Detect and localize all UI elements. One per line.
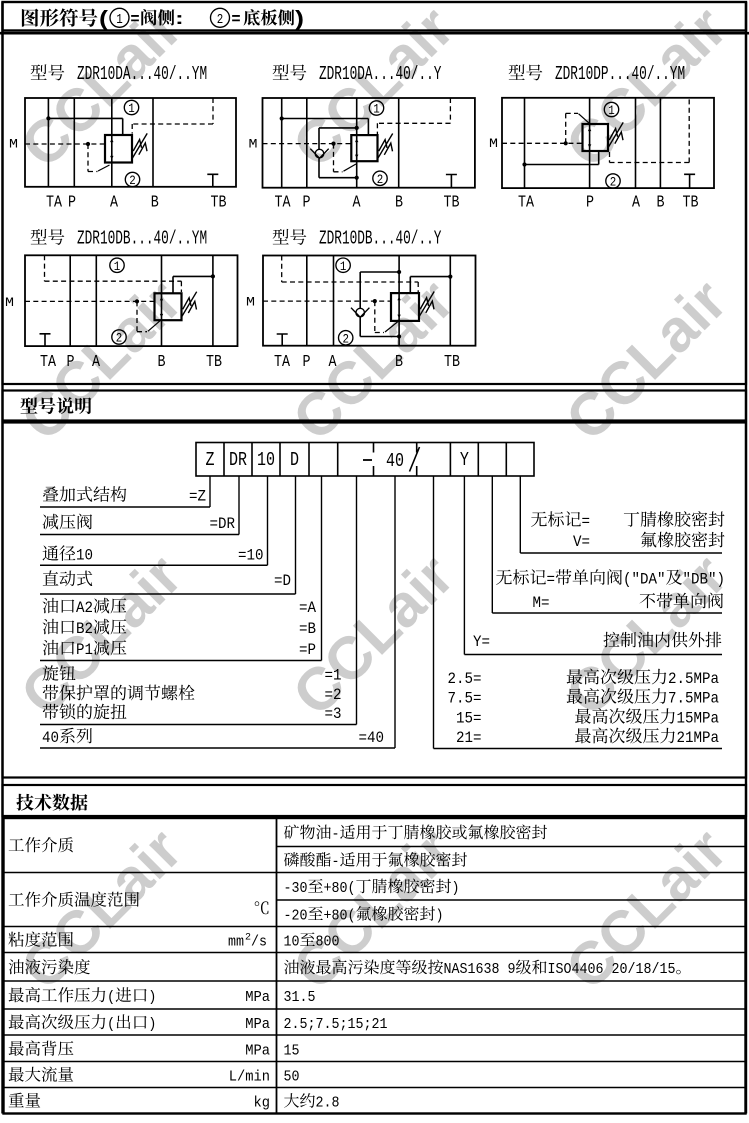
svg-text:ZDR10DB...40/..Y: ZDR10DB...40/..Y [319,228,442,250]
svg-text:P: P [586,194,594,213]
svg-text:TB: TB [444,194,460,213]
svg-text:10: 10 [76,547,93,565]
svg-text:Z: Z [206,449,215,471]
svg-text:2: 2 [342,332,349,347]
svg-text:B2: B2 [76,620,93,638]
svg-text:15=: 15= [456,710,482,728]
svg-text:2.5MPa: 2.5MPa [668,670,719,688]
svg-text:=P: =P [299,641,316,659]
svg-text:V=: V= [573,533,590,551]
svg-text:=: = [131,9,140,28]
svg-text:ZDR10DA...40/..YM: ZDR10DA...40/..YM [77,63,207,85]
svg-text:D: D [290,449,299,471]
svg-text:1: 1 [128,101,135,116]
svg-text:=10: =10 [238,547,264,565]
svg-text:-: - [332,827,340,843]
svg-text:=3: =3 [325,705,342,723]
svg-text:TA: TA [40,353,57,372]
svg-text:M: M [489,136,498,151]
svg-text:=B: =B [299,620,316,638]
svg-text:A: A [110,194,119,213]
svg-text:M: M [249,137,258,152]
svg-text:TB: TB [211,194,227,213]
svg-text:=1: =1 [325,667,342,685]
svg-text:1: 1 [608,103,615,118]
svg-text:1: 1 [114,259,121,274]
svg-text:TB: TB [206,353,222,372]
svg-text:50: 50 [284,1070,300,1086]
svg-text:A: A [329,353,338,372]
svg-text:40: 40 [386,450,404,472]
svg-text:"DB"): "DB") [683,571,726,589]
svg-text:10: 10 [284,935,300,951]
svg-text:2.5;7.5;15;21: 2.5;7.5;15;21 [284,1017,388,1033]
svg-text::: : [175,8,184,28]
svg-text:TB: TB [683,194,699,213]
svg-text:=: = [582,513,591,531]
svg-text:21MPa: 21MPa [677,729,720,747]
svg-text:P: P [303,353,311,372]
svg-text:ZDR10DB...40/..YM: ZDR10DB...40/..YM [77,228,207,250]
svg-text:ZDR10DP...40/..YM: ZDR10DP...40/..YM [555,63,685,85]
svg-text:MPa: MPa [245,1015,270,1033]
svg-text:B: B [657,194,665,213]
svg-text:TA: TA [46,194,63,213]
svg-text:2: 2 [377,172,384,187]
svg-text:7.5=: 7.5= [448,690,482,708]
svg-text:1: 1 [116,12,123,28]
svg-text:): ) [148,988,156,1006]
svg-text:MPa: MPa [245,988,270,1006]
svg-text:(: ( [107,1015,115,1033]
svg-text:7.5MPa: 7.5MPa [668,690,719,708]
svg-text:-20: -20 [284,909,308,925]
svg-text:MPa: MPa [245,1042,270,1060]
svg-text:1: 1 [373,102,380,117]
svg-text:=40: =40 [359,729,385,747]
svg-text:TA: TA [518,194,535,213]
svg-text:TA: TA [274,353,291,372]
svg-text:A: A [92,353,101,372]
svg-text:P: P [67,353,75,372]
svg-text:A2: A2 [76,599,93,617]
svg-text:-30: -30 [284,881,308,897]
svg-text:ZDR10DA...40/..Y: ZDR10DA...40/..Y [319,63,442,85]
svg-text:B: B [151,194,159,213]
svg-text:DR: DR [229,449,247,471]
svg-text:A: A [353,194,362,213]
svg-text:2.8: 2.8 [316,1096,340,1112]
svg-text:15: 15 [284,1044,300,1060]
svg-text:15MPa: 15MPa [677,710,720,728]
svg-text:): ) [452,881,460,897]
svg-text:): ) [148,1015,156,1033]
svg-text:21=: 21= [456,729,482,747]
svg-text:-: - [332,855,340,871]
svg-text:TA: TA [275,194,292,213]
svg-text:B: B [395,194,403,213]
svg-text:2.5=: 2.5= [448,670,482,688]
svg-text:=2: =2 [325,686,342,704]
svg-text:=: = [547,571,556,589]
svg-text:): ) [436,909,444,925]
svg-text:P: P [68,194,76,213]
svg-text:M=: M= [533,594,550,612]
svg-text:2: 2 [217,12,224,28]
svg-text:2: 2 [610,175,617,190]
svg-text:=DR: =DR [210,515,236,533]
svg-text:/s: /s [251,934,267,951]
svg-text:B: B [395,353,403,372]
svg-text:ISO4406 20/18/15: ISO4406 20/18/15 [548,962,676,978]
svg-text:=D: =D [274,572,291,590]
svg-text:("DA": ("DA" [623,571,666,589]
svg-text:A: A [632,194,641,213]
svg-text:mm: mm [228,934,244,951]
svg-text:40: 40 [42,729,59,747]
svg-text:10: 10 [257,449,275,471]
svg-text:+80(: +80( [324,909,356,925]
svg-text:M: M [5,295,14,310]
svg-text:P1: P1 [76,641,93,659]
svg-text:): ) [295,8,304,31]
svg-text:2: 2 [129,173,136,188]
svg-text:Y: Y [460,449,469,471]
svg-text:B: B [158,353,166,372]
svg-text:L/min: L/min [229,1068,270,1086]
svg-text:M: M [9,137,18,152]
svg-text:TB: TB [444,353,460,372]
svg-text:kg: kg [254,1094,271,1112]
svg-text:31.5: 31.5 [284,990,316,1006]
svg-text:(: ( [99,8,108,31]
svg-text:1: 1 [340,259,347,274]
svg-text:=: = [232,9,241,28]
svg-text:800: 800 [316,935,340,951]
svg-text:(: ( [107,988,115,1006]
svg-text:=A: =A [299,599,317,617]
svg-text:P: P [303,194,311,213]
svg-text:NAS1638 9: NAS1638 9 [444,962,516,978]
svg-text:Y=: Y= [473,633,490,651]
svg-text:2: 2 [116,331,123,346]
svg-text:+80(: +80( [324,881,356,897]
svg-text:M: M [246,295,255,310]
svg-text:=Z: =Z [189,488,206,506]
